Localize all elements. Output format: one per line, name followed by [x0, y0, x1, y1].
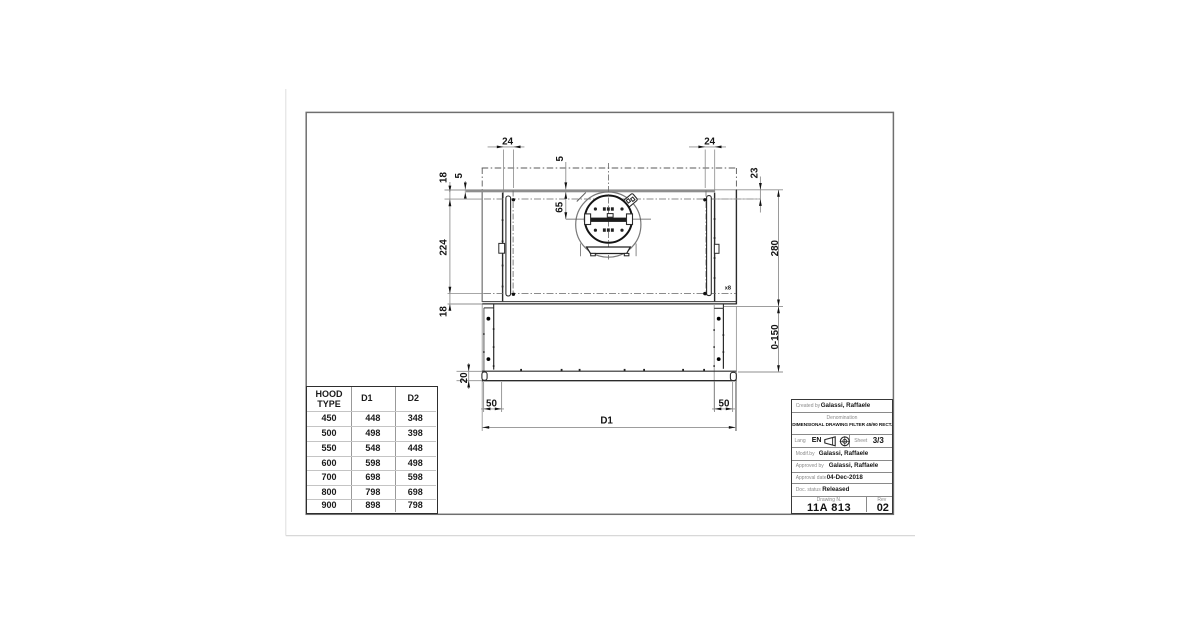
svg-text:20: 20 — [459, 372, 470, 383]
svg-text:0-150: 0-150 — [770, 324, 781, 350]
svg-text:5: 5 — [454, 173, 465, 179]
svg-text:280: 280 — [770, 239, 781, 256]
svg-text:x8: x8 — [725, 286, 731, 292]
svg-text:18: 18 — [439, 172, 450, 183]
svg-text:50: 50 — [486, 398, 497, 409]
svg-text:18: 18 — [439, 306, 450, 317]
svg-text:23: 23 — [749, 167, 760, 178]
svg-text:24: 24 — [502, 137, 513, 148]
svg-text:24: 24 — [704, 137, 715, 148]
svg-text:5: 5 — [555, 156, 566, 162]
svg-text:224: 224 — [439, 239, 450, 256]
svg-text:50: 50 — [719, 398, 730, 409]
svg-text:65: 65 — [554, 201, 565, 212]
svg-text:D1: D1 — [600, 415, 613, 426]
